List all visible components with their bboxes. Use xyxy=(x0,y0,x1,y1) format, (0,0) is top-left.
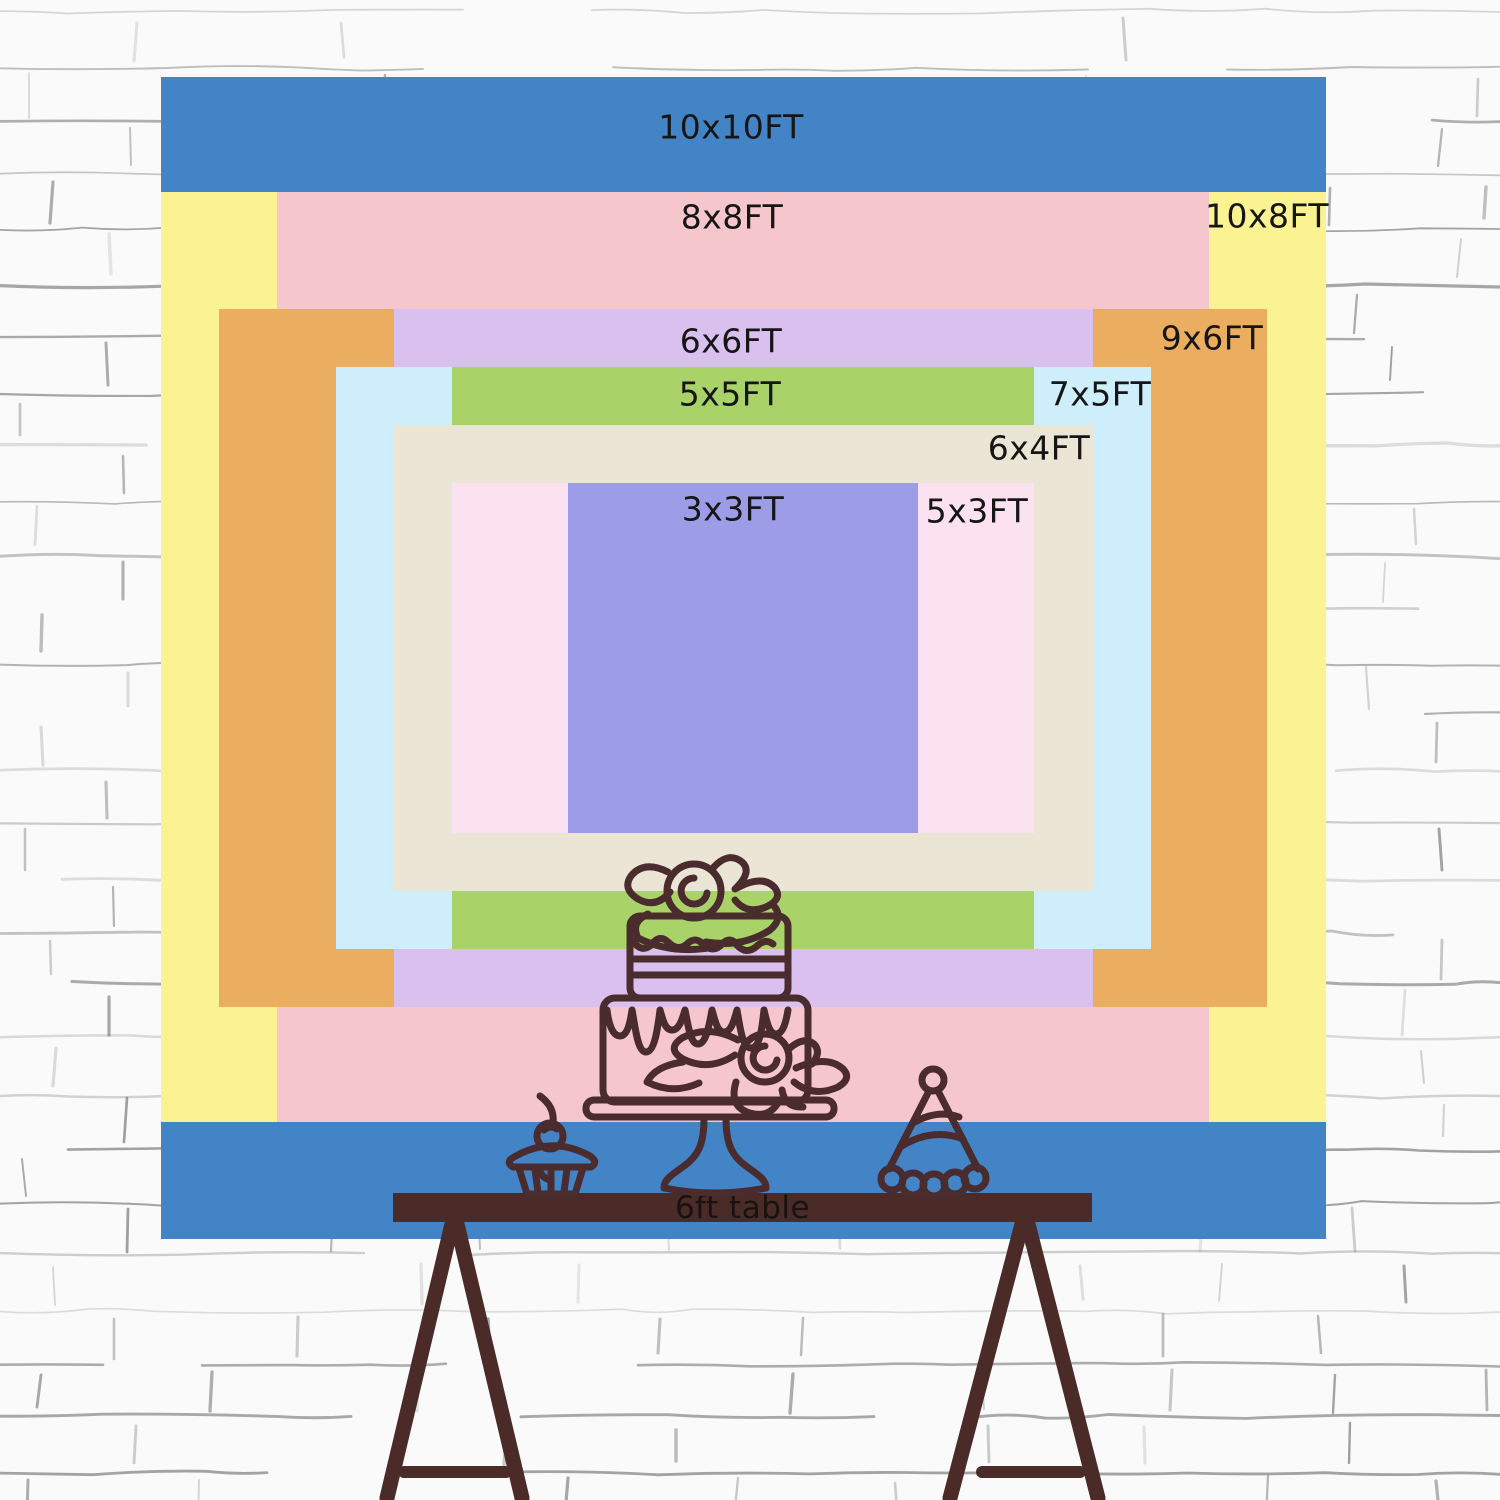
cake-artwork xyxy=(509,858,986,1196)
party-line-art xyxy=(0,0,1500,1500)
table-legs xyxy=(387,1224,1098,1498)
cake-top-tier xyxy=(630,916,788,998)
cake-bottom-tier xyxy=(603,998,808,1102)
cake-stand xyxy=(586,1100,834,1193)
cupcake xyxy=(509,1096,595,1194)
party-hat xyxy=(881,1069,986,1196)
cake-top-rose xyxy=(628,858,778,950)
backdrop-size-chart: 10x10FT10x8FT8x8FT9x6FT6x6FT7x5FT5x5FT6x… xyxy=(0,0,1500,1500)
